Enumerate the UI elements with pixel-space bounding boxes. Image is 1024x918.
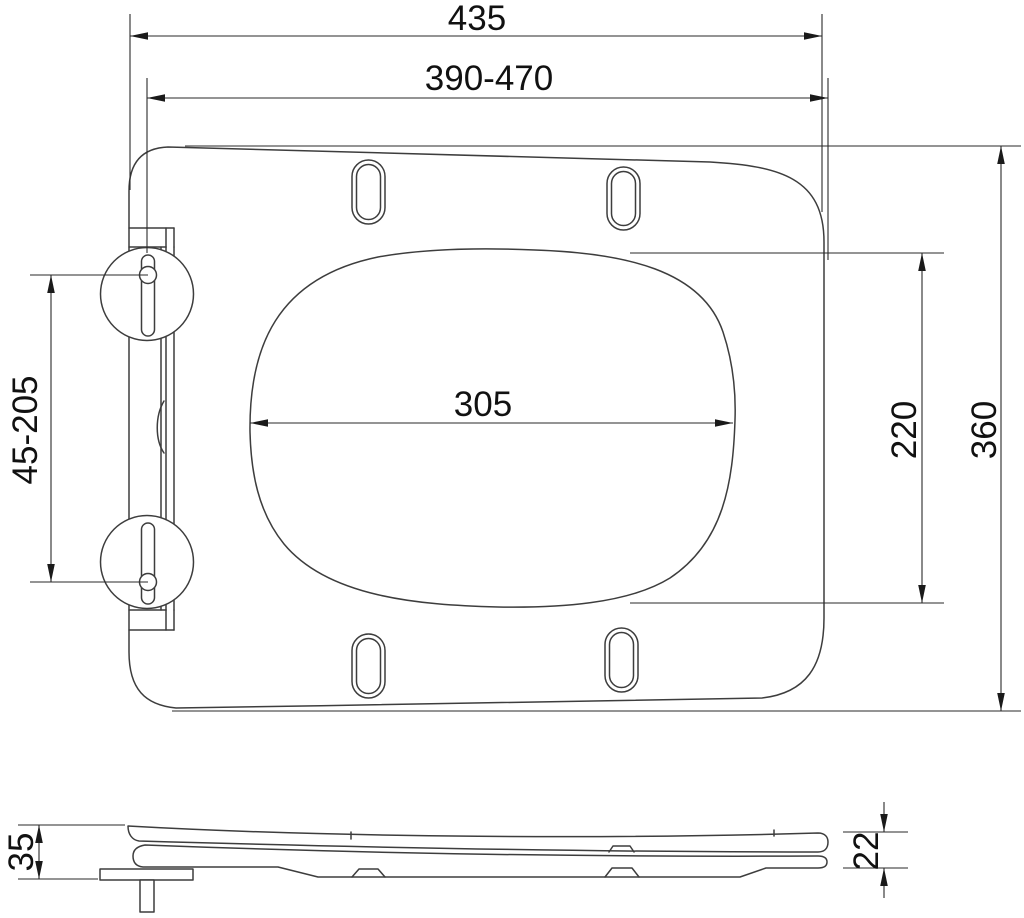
hinge-bottom xyxy=(101,516,194,609)
dim-label-opening-width: 305 xyxy=(454,385,512,424)
dim-label-opening-depth: 220 xyxy=(885,401,924,459)
dim-label-overall-depth: 360 xyxy=(965,401,1004,459)
side-hinge-pin xyxy=(140,880,154,912)
side-hinge-plate xyxy=(100,869,193,880)
technical-drawing-canvas: 435 390-470 305 220 xyxy=(0,0,1024,918)
top-view: 435 390-470 305 220 xyxy=(6,0,1021,711)
hinge-top xyxy=(101,248,194,341)
dim-label-hinge-range: 45-205 xyxy=(6,376,45,485)
dim-label-mounting-range: 390-470 xyxy=(425,59,553,98)
dim-label-height-with-hinge: 35 xyxy=(2,833,41,872)
hinge-bottom-slot xyxy=(142,523,155,604)
dimension-profile-thickness: 22 xyxy=(843,802,908,898)
dim-label-overall-width: 435 xyxy=(448,0,506,38)
side-view: 35 22 xyxy=(2,802,908,912)
toilet-seat-drawing: 435 390-470 305 220 xyxy=(0,0,1024,918)
dim-label-profile-thickness: 22 xyxy=(847,832,886,871)
seat-opening xyxy=(250,249,735,607)
